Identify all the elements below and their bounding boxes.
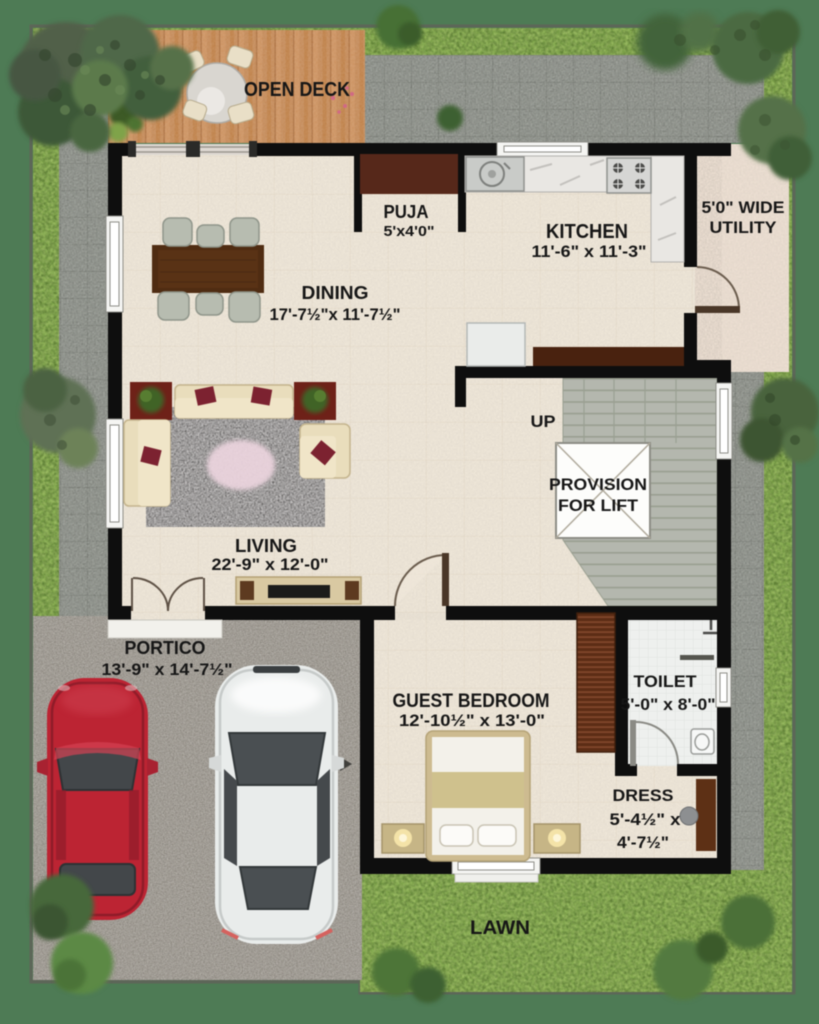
svg-text:FOR LIFT: FOR LIFT xyxy=(558,496,639,515)
svg-text:4'-7½": 4'-7½" xyxy=(617,833,669,852)
svg-text:PROVISION: PROVISION xyxy=(549,475,647,494)
svg-text:5'-0" x 8'-0": 5'-0" x 8'-0" xyxy=(621,695,716,714)
svg-text:DINING: DINING xyxy=(302,283,369,303)
svg-text:5'x4'0": 5'x4'0" xyxy=(384,223,435,240)
svg-text:22'-9" x 12'-0": 22'-9" x 12'-0" xyxy=(212,555,329,574)
svg-text:17'-7½"x 11'-7½": 17'-7½"x 11'-7½" xyxy=(270,305,401,324)
svg-text:LAWN: LAWN xyxy=(470,918,530,939)
svg-text:UP: UP xyxy=(531,412,556,431)
svg-text:PORTICO: PORTICO xyxy=(125,638,206,658)
svg-text:5'-4½" x: 5'-4½" x xyxy=(610,810,682,829)
svg-text:PUJA: PUJA xyxy=(384,202,429,222)
svg-text:UTILITY: UTILITY xyxy=(710,218,778,237)
svg-text:13'-9" x 14'-7½": 13'-9" x 14'-7½" xyxy=(102,660,233,679)
svg-text:GUEST BEDROOM: GUEST BEDROOM xyxy=(393,691,550,712)
svg-text:OPEN DECK: OPEN DECK xyxy=(244,79,350,101)
svg-text:KITCHEN: KITCHEN xyxy=(546,221,628,243)
svg-text:LIVING: LIVING xyxy=(235,536,297,556)
svg-text:12'-10½" x 13'-0": 12'-10½" x 13'-0" xyxy=(399,711,545,730)
svg-text:5'0" WIDE: 5'0" WIDE xyxy=(702,198,785,217)
svg-text:11'-6" x 11'-3": 11'-6" x 11'-3" xyxy=(532,242,647,261)
svg-text:DRESS: DRESS xyxy=(613,786,674,805)
svg-text:TOILET: TOILET xyxy=(634,672,698,691)
